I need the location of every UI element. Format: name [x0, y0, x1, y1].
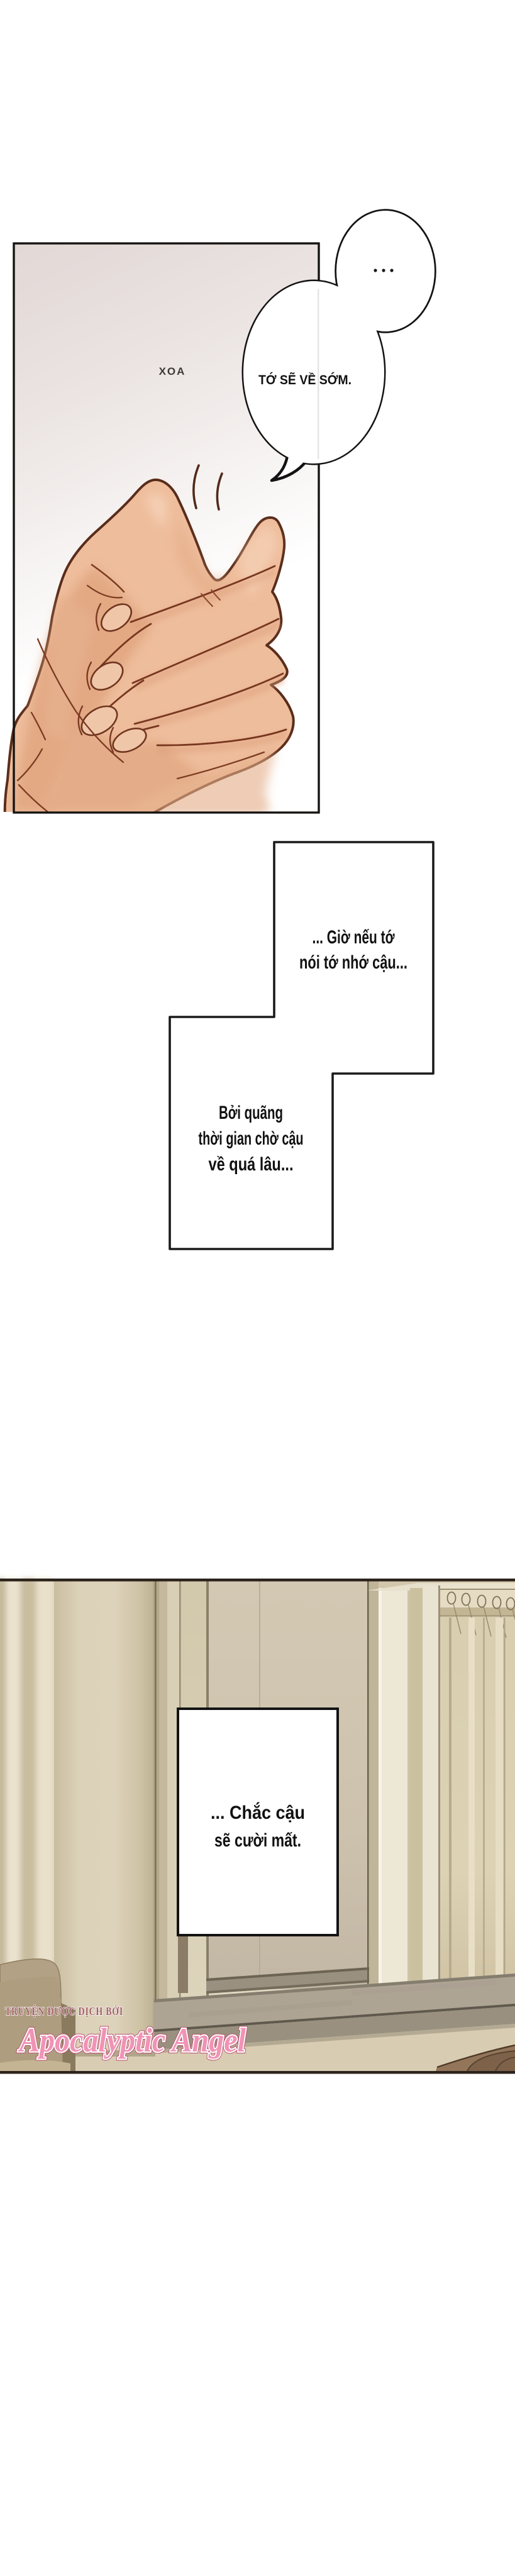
- svg-text:Apocalyptic Angel: Apocalyptic Angel: [18, 2021, 246, 2059]
- svg-text:TỚ SẼ VỀ SỚM.: TỚ SẼ VỀ SỚM.: [258, 372, 352, 387]
- svg-text:TRUYỆN ĐƯỢC DỊCH BỞI: TRUYỆN ĐƯỢC DỊCH BỞI: [5, 2004, 123, 2018]
- svg-text:... Giờ nếu tớ: ... Giờ nếu tớ: [313, 927, 395, 948]
- svg-text:về quá lâu...: về quá lâu...: [209, 1154, 294, 1175]
- svg-text:... Chắc cậu: ... Chắc cậu: [211, 1802, 305, 1823]
- svg-text:sẽ cười mất.: sẽ cười mất.: [214, 1830, 301, 1851]
- svg-text:Bởi quãng: Bởi quãng: [219, 1102, 283, 1123]
- svg-text:nói tớ nhớ cậu...: nói tớ nhớ cậu...: [299, 952, 407, 973]
- svg-text:XOA: XOA: [159, 365, 186, 377]
- svg-text:thời gian chờ cậu: thời gian chờ cậu: [199, 1128, 304, 1149]
